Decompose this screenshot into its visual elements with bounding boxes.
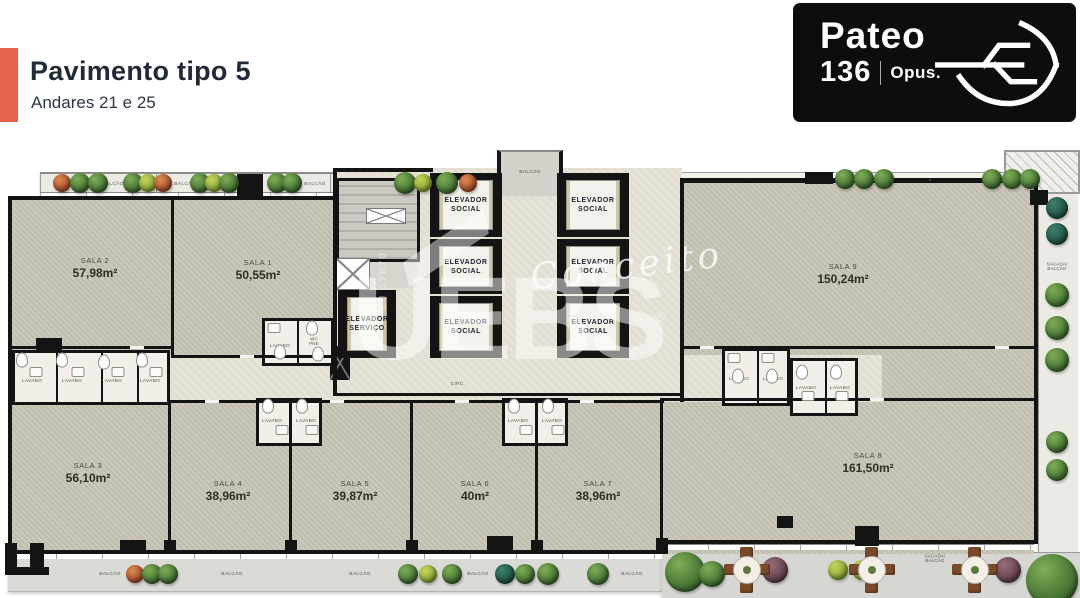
tree-icon [398, 564, 418, 584]
balcao-label: BALCÃO [621, 572, 642, 577]
tree-icon [874, 169, 894, 189]
brand-logo: Pateo 136 Opus. [793, 3, 1076, 122]
door-opening [700, 346, 714, 349]
tree-icon [495, 564, 515, 584]
elevator-social-3: ELEVADORSOCIAL [430, 296, 502, 358]
room-label-sala8: SALA 8161,50m² [842, 451, 893, 475]
tree-icon [414, 174, 432, 192]
lavabo-label: LAVABO [508, 419, 528, 424]
lavabo-label: LAVABO [262, 419, 282, 424]
toilet-icon [732, 369, 744, 384]
table-with-chairs [952, 547, 998, 593]
elevator-social-5: ELEVADORSOCIAL [557, 239, 629, 294]
pillar [805, 172, 833, 184]
toilet-icon [312, 347, 324, 362]
tree-icon [1046, 223, 1068, 245]
wall [333, 168, 337, 396]
sink-icon [728, 353, 741, 363]
pillar [30, 543, 44, 575]
toilet-icon [262, 399, 274, 414]
door-opening [130, 346, 144, 349]
tree-icon [1002, 169, 1022, 189]
elevator-service: ELEVADORSERVIÇO [338, 290, 396, 358]
pillar [855, 526, 879, 546]
pillar [656, 538, 668, 554]
page-subtitle: Andares 21 e 25 [31, 93, 156, 113]
elevator-social-2: ELEVADORSOCIAL [430, 239, 502, 294]
table-icon [961, 556, 989, 584]
tree-icon [835, 169, 855, 189]
door-opening [870, 398, 884, 401]
balcao-label: BALCÃO [221, 572, 242, 577]
lavabo-label: LAVABO [542, 419, 562, 424]
table-icon [733, 556, 761, 584]
room-label-sala6: SALA 640m² [461, 479, 490, 503]
sink-icon [150, 367, 163, 377]
toilet-icon [274, 345, 286, 360]
pillar [487, 536, 513, 554]
floor-plan: BALCÃO ELEVADORSOCIAL ELEVADORSOCIAL ELE… [0, 150, 1080, 598]
wall [8, 196, 12, 556]
toilet-icon [766, 369, 778, 384]
wall [410, 402, 413, 552]
wall [660, 400, 663, 542]
logo-brand: Opus. [890, 63, 941, 83]
logo-number: 136 [820, 56, 871, 89]
tree-icon [995, 557, 1021, 583]
tree-icon [158, 564, 178, 584]
tree-icon [154, 174, 172, 192]
tree-icon [1046, 431, 1068, 453]
pillar [285, 540, 297, 554]
door-opening [240, 355, 254, 358]
tree-icon [1045, 316, 1069, 340]
logo-name: Pateo [820, 15, 926, 57]
door-opening [455, 400, 469, 403]
toilet-icon [508, 399, 520, 414]
tree-icon [929, 179, 931, 181]
room-label-sala9: SALA 9150,24m² [817, 262, 868, 286]
tree-icon [442, 564, 462, 584]
room-label-sala2: SALA 257,98m² [73, 256, 118, 280]
wall [660, 540, 1038, 544]
sink-icon [112, 367, 125, 377]
balcao-label: BALCÃO [304, 182, 325, 187]
tree-icon [394, 172, 416, 194]
table-with-chairs [724, 547, 770, 593]
tree-icon [219, 173, 239, 193]
tree-icon [828, 560, 848, 580]
lavabo-label: LAVABO [796, 386, 816, 391]
wall [168, 402, 171, 552]
sink-icon [276, 425, 289, 435]
lavabo-label: LAVABO [296, 419, 316, 424]
wall [535, 402, 538, 552]
toilet-icon [542, 399, 554, 414]
sink-icon [72, 367, 85, 377]
tree-icon [88, 173, 108, 193]
stair-elevator-machine [366, 208, 406, 224]
tree-icon [537, 563, 559, 585]
sink-icon [552, 425, 565, 435]
balcao-label: BALCÃO [99, 572, 120, 577]
tree-icon [854, 169, 874, 189]
wall [680, 178, 684, 402]
toilet-icon [16, 353, 28, 368]
page-title: Pavimento tipo 5 [30, 56, 251, 87]
sink-icon [268, 323, 281, 333]
wall [1034, 178, 1038, 544]
balcao-label: BALCÃO [349, 572, 370, 577]
tree-icon [982, 169, 1002, 189]
sacada-balcao-label: SACADA/BALCÃO [925, 555, 946, 564]
sacada-balcao-label: SACADA/BALCÃO [1047, 263, 1068, 272]
sink-icon [836, 391, 849, 401]
door-opening [995, 346, 1009, 349]
pillar [406, 540, 418, 554]
tree-icon [1046, 459, 1068, 481]
tree-icon [1020, 169, 1040, 189]
tree-icon [459, 174, 477, 192]
balcao-label: BALCÃO [467, 572, 488, 577]
logo-divider [880, 61, 881, 85]
lavabo-label: LAVABO [62, 379, 82, 384]
circ-label: CIRC. [451, 382, 466, 387]
lavabo-label: LAVABO [830, 386, 850, 391]
elevator-social-6: ELEVADORSOCIAL [557, 296, 629, 358]
tree-icon [515, 564, 535, 584]
toilet-icon [796, 365, 808, 380]
wall [289, 402, 292, 552]
sink-icon [802, 391, 815, 401]
toilet-icon [98, 355, 110, 370]
room-label-sala3: SALA 356,10m² [66, 461, 111, 485]
tree-icon [70, 173, 90, 193]
sink-icon [520, 425, 533, 435]
tree-icon [1045, 283, 1069, 307]
tree-icon [419, 565, 437, 583]
door-opening [580, 400, 594, 403]
floorplan-page: Pavimento tipo 5 Andares 21 e 25 Pateo 1… [0, 0, 1080, 598]
room-label-sala5: SALA 539,87m² [333, 479, 378, 503]
tree-icon [587, 563, 609, 585]
tree-icon [436, 172, 458, 194]
pillar [777, 516, 793, 528]
balcao-label: BALCÃO [519, 170, 540, 175]
sink-icon [306, 425, 319, 435]
room-label-sala7: SALA 738,96m² [576, 479, 621, 503]
room-label-sala1: SALA 150,55m² [236, 258, 281, 282]
wall [680, 346, 1038, 349]
wall [333, 393, 682, 396]
elevator-social-4: ELEVADORSOCIAL [557, 173, 629, 237]
wall [8, 550, 664, 554]
door-opening [205, 400, 219, 403]
sink-icon [762, 353, 775, 363]
lavabo-label: LAVABO [140, 379, 160, 384]
lavabo-label: LAVABO [102, 379, 122, 384]
toilet-icon [136, 353, 148, 368]
boat-leaf-icon [935, 15, 1063, 111]
toilet-icon [306, 321, 318, 336]
pillar [164, 540, 176, 554]
wall [333, 168, 433, 172]
tree-icon [53, 174, 71, 192]
wall [8, 346, 174, 349]
table-with-chairs [849, 547, 895, 593]
tree-icon [1045, 348, 1069, 372]
pillar [531, 540, 543, 554]
toilet-icon [296, 399, 308, 414]
wc-pne-label: WCPNE [309, 338, 319, 347]
pillar [120, 540, 146, 554]
room-label-sala4: SALA 438,96m² [206, 479, 251, 503]
duct-shaft [336, 258, 370, 290]
pillar [1030, 190, 1048, 205]
tree-icon [1046, 197, 1068, 219]
tree-icon [1026, 554, 1078, 598]
pillar [237, 174, 263, 196]
pillar [36, 338, 62, 352]
door-opening [330, 400, 344, 403]
tree-icon [282, 173, 302, 193]
table-icon [858, 556, 886, 584]
wall [171, 196, 174, 358]
lavabo-label: LAVABO [22, 379, 42, 384]
tree-icon [699, 561, 725, 587]
wall [660, 398, 1038, 401]
sink-icon [30, 367, 43, 377]
toilet-icon [56, 353, 68, 368]
accent-bar [0, 48, 18, 122]
toilet-icon [830, 365, 842, 380]
